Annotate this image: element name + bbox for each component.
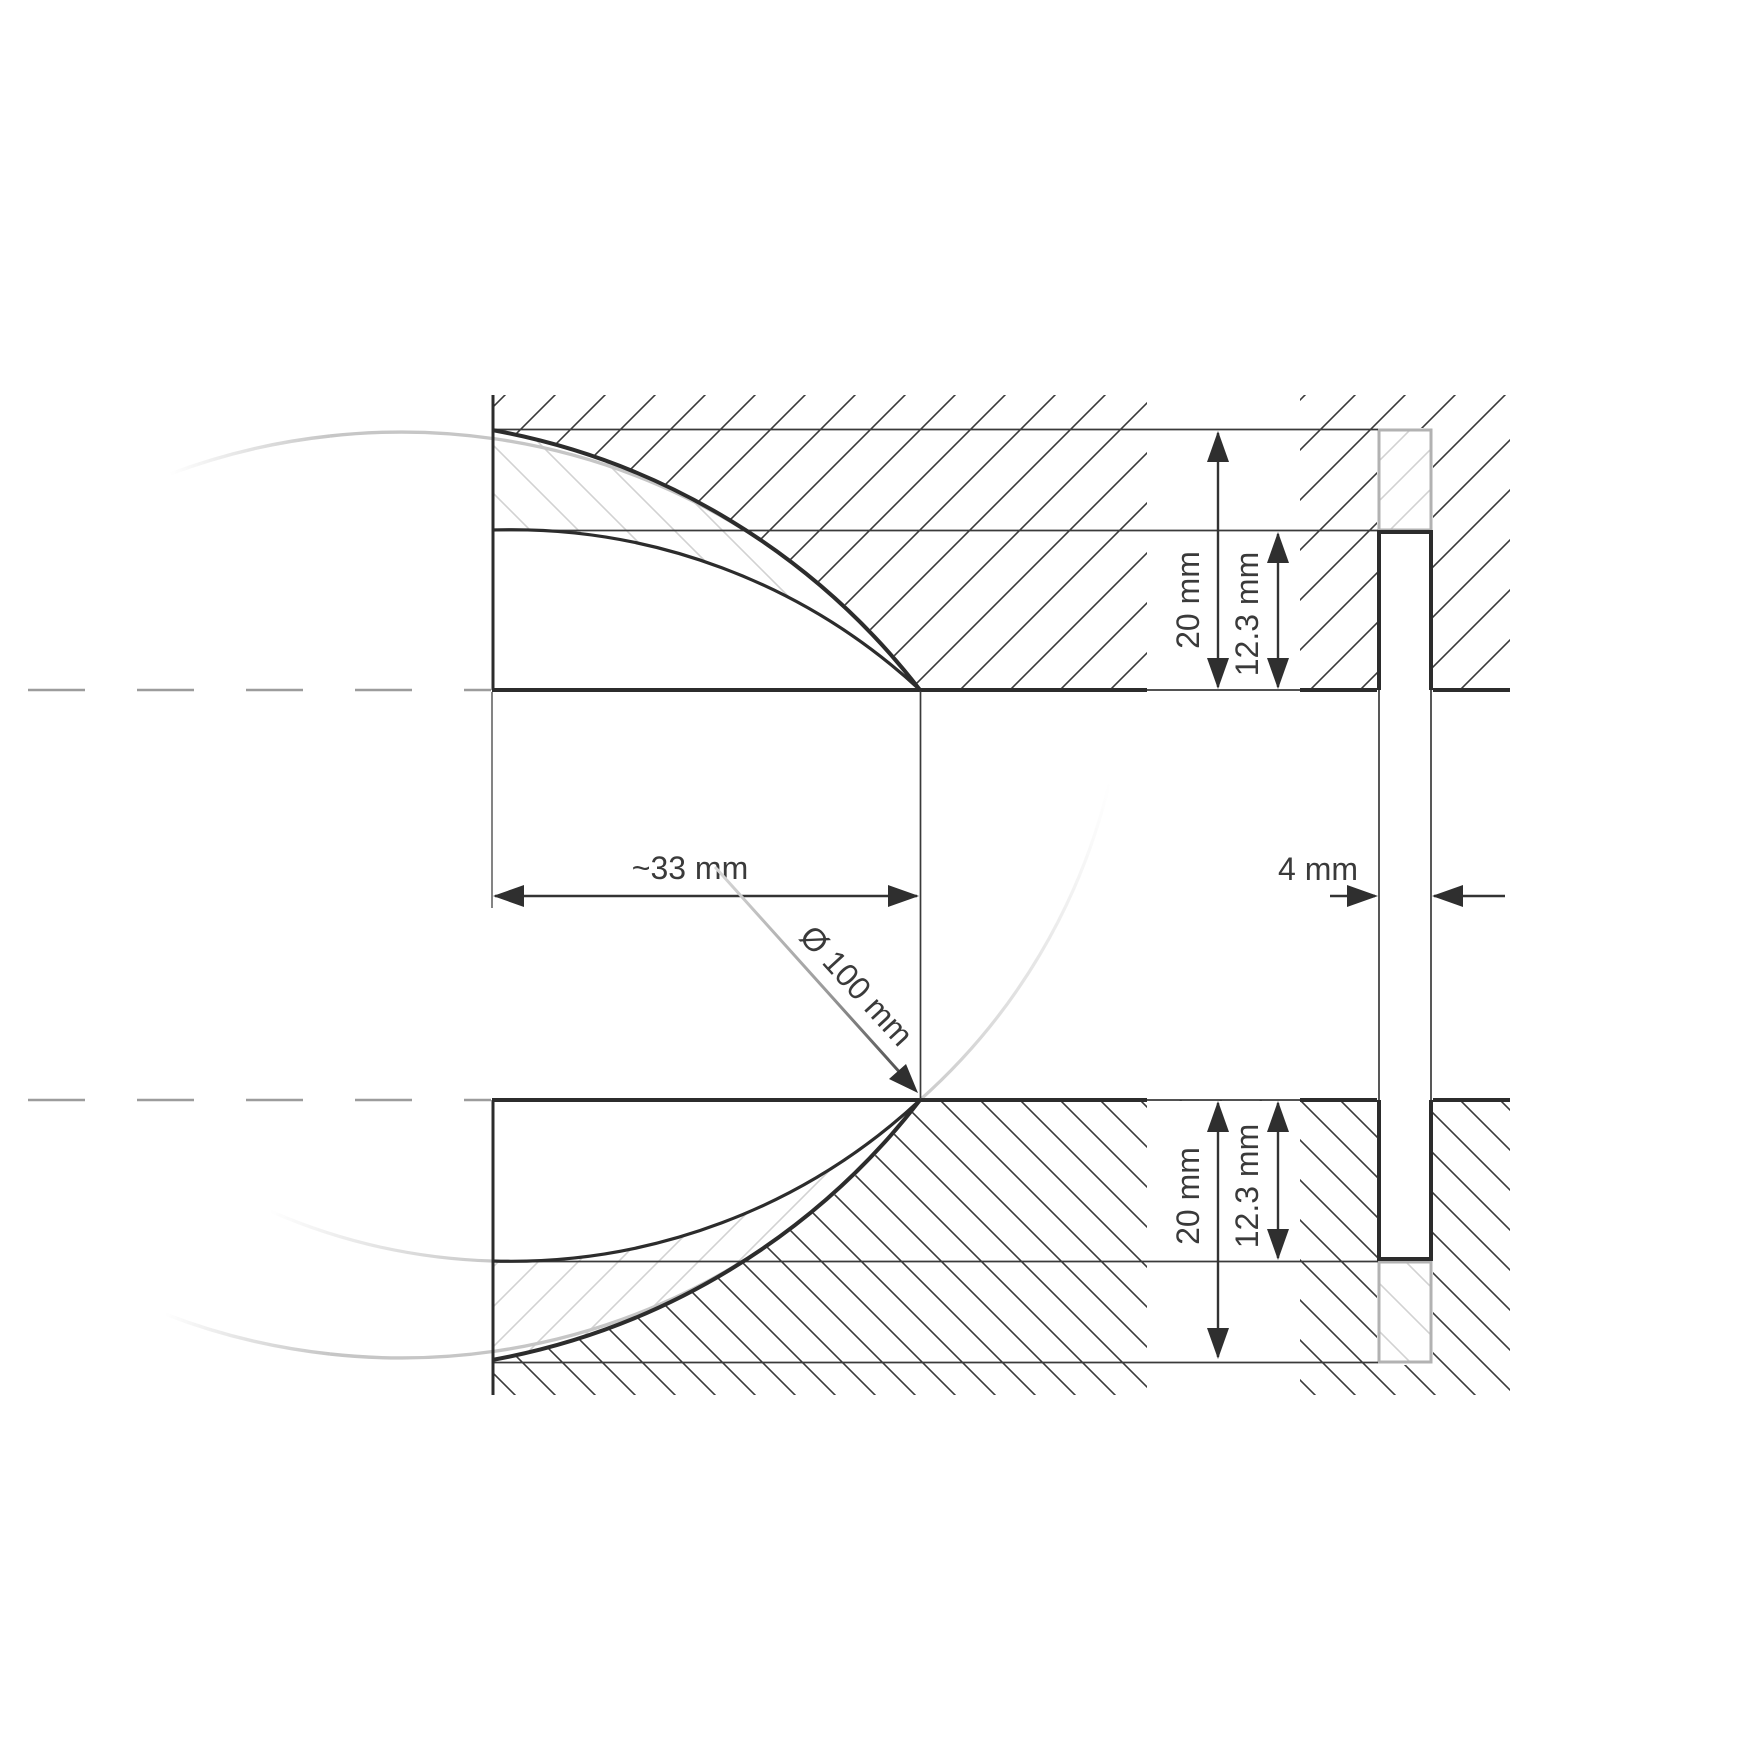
seat-arc-continuation-right-bottom — [920, 780, 1110, 1100]
slot-ghost-top — [1379, 430, 1431, 530]
dim-label-12-3mm-bottom: 12.3 mm — [1229, 1124, 1265, 1248]
leader-line-diameter — [715, 867, 903, 1076]
lens-arc-top-fade — [170, 436, 330, 474]
dim-label-4mm: 4 mm — [1278, 851, 1358, 887]
dim-label-12-3mm-top: 12.3 mm — [1229, 552, 1265, 676]
lens-arc-bottom-fade — [165, 1314, 330, 1354]
dimension-33mm: ~33 mm — [493, 850, 919, 907]
dim-label-20mm-bottom: 20 mm — [1170, 1147, 1206, 1245]
centerlines — [28, 690, 491, 1100]
arrow-diameter — [889, 1064, 918, 1093]
dimension-4mm: 4 mm — [1278, 851, 1505, 907]
dim-label-20mm-top: 20 mm — [1170, 551, 1206, 649]
arrow-4mm-left — [1347, 885, 1378, 907]
arrow-33mm-left — [493, 885, 524, 907]
arrow-4mm-right — [1432, 885, 1463, 907]
section-view-drawing: ~33 mm 4 mm Ø 100 mm 20 mm 1 — [0, 0, 1757, 1757]
seat-arc-continuation-left-bottom — [270, 1211, 492, 1261]
slot-ghost-bottom — [1379, 1262, 1431, 1362]
dim-label-diameter: Ø 100 mm — [793, 918, 920, 1052]
arrow-33mm-right — [888, 885, 919, 907]
dim-label-33mm: ~33 mm — [632, 850, 748, 886]
drawing-canvas: ~33 mm 4 mm Ø 100 mm 20 mm 1 — [0, 0, 1757, 1757]
